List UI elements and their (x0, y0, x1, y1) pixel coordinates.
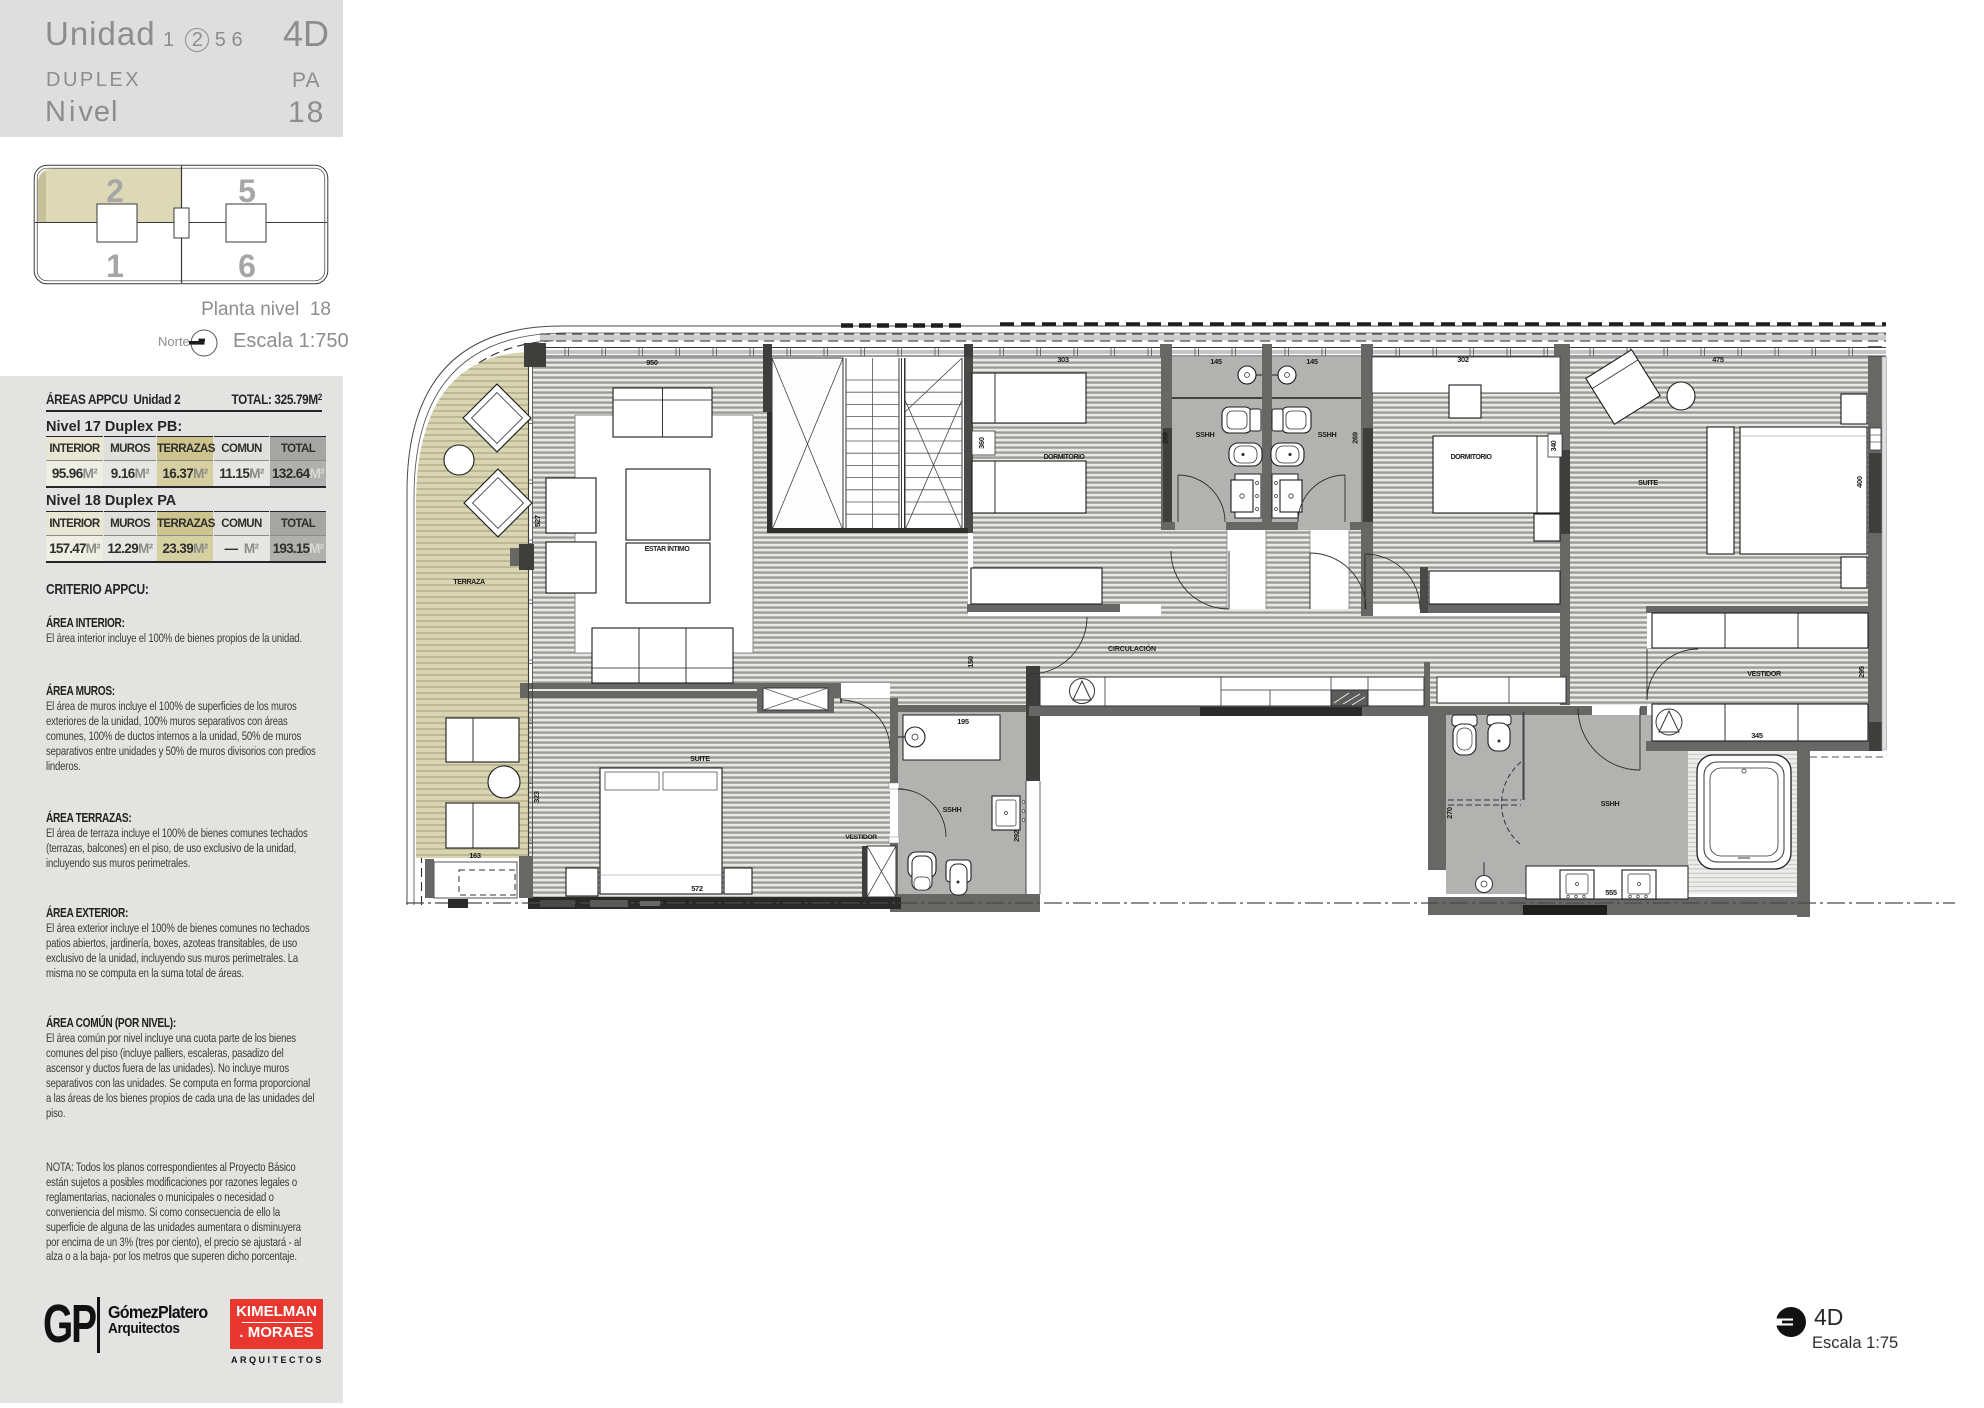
svg-text:2: 2 (106, 173, 124, 209)
svg-text:302: 302 (1457, 355, 1469, 364)
svg-text:VESTIDOR: VESTIDOR (1747, 669, 1782, 678)
svg-text:950: 950 (646, 358, 658, 367)
svg-text:150: 150 (966, 656, 975, 668)
svg-text:555: 555 (1605, 888, 1617, 897)
svg-text:SUITE: SUITE (1638, 478, 1658, 487)
svg-text:DORMITORIO: DORMITORIO (1044, 454, 1086, 461)
svg-text:1: 1 (106, 248, 124, 284)
svg-text:303: 303 (1057, 355, 1069, 364)
svg-text:SSHH: SSHH (1318, 430, 1337, 439)
svg-text:269: 269 (1161, 432, 1170, 444)
svg-text:527: 527 (533, 515, 542, 527)
svg-text:400: 400 (1855, 476, 1864, 488)
svg-text:195: 195 (957, 717, 969, 726)
svg-text:323: 323 (532, 791, 541, 803)
svg-text:163: 163 (469, 851, 481, 860)
svg-text:340: 340 (1551, 440, 1558, 451)
svg-text:475: 475 (1712, 355, 1724, 364)
svg-text:SSHH: SSHH (1196, 430, 1215, 439)
svg-text:360: 360 (977, 437, 986, 449)
svg-text:VESTIDOR: VESTIDOR (845, 834, 877, 841)
svg-text:145: 145 (1210, 357, 1222, 366)
svg-text:5: 5 (238, 173, 256, 209)
svg-text:ESTAR ÍNTIMO: ESTAR ÍNTIMO (645, 544, 691, 553)
svg-text:TERRAZA: TERRAZA (453, 577, 485, 586)
svg-text:SUITE: SUITE (690, 754, 710, 763)
svg-text:DORMITORIO: DORMITORIO (1451, 454, 1493, 461)
svg-text:292: 292 (1012, 830, 1021, 842)
svg-text:269: 269 (1351, 432, 1360, 444)
svg-text:295: 295 (1857, 666, 1866, 678)
svg-text:CIRCULACIÓN: CIRCULACIÓN (1108, 644, 1156, 653)
svg-text:SSHH: SSHH (1601, 799, 1620, 808)
svg-text:572: 572 (691, 884, 703, 893)
svg-text:6: 6 (238, 248, 256, 284)
svg-text:270: 270 (1445, 807, 1454, 819)
svg-text:345: 345 (1751, 731, 1763, 740)
svg-text:145: 145 (1306, 357, 1318, 366)
svg-text:SSHH: SSHH (943, 805, 962, 814)
